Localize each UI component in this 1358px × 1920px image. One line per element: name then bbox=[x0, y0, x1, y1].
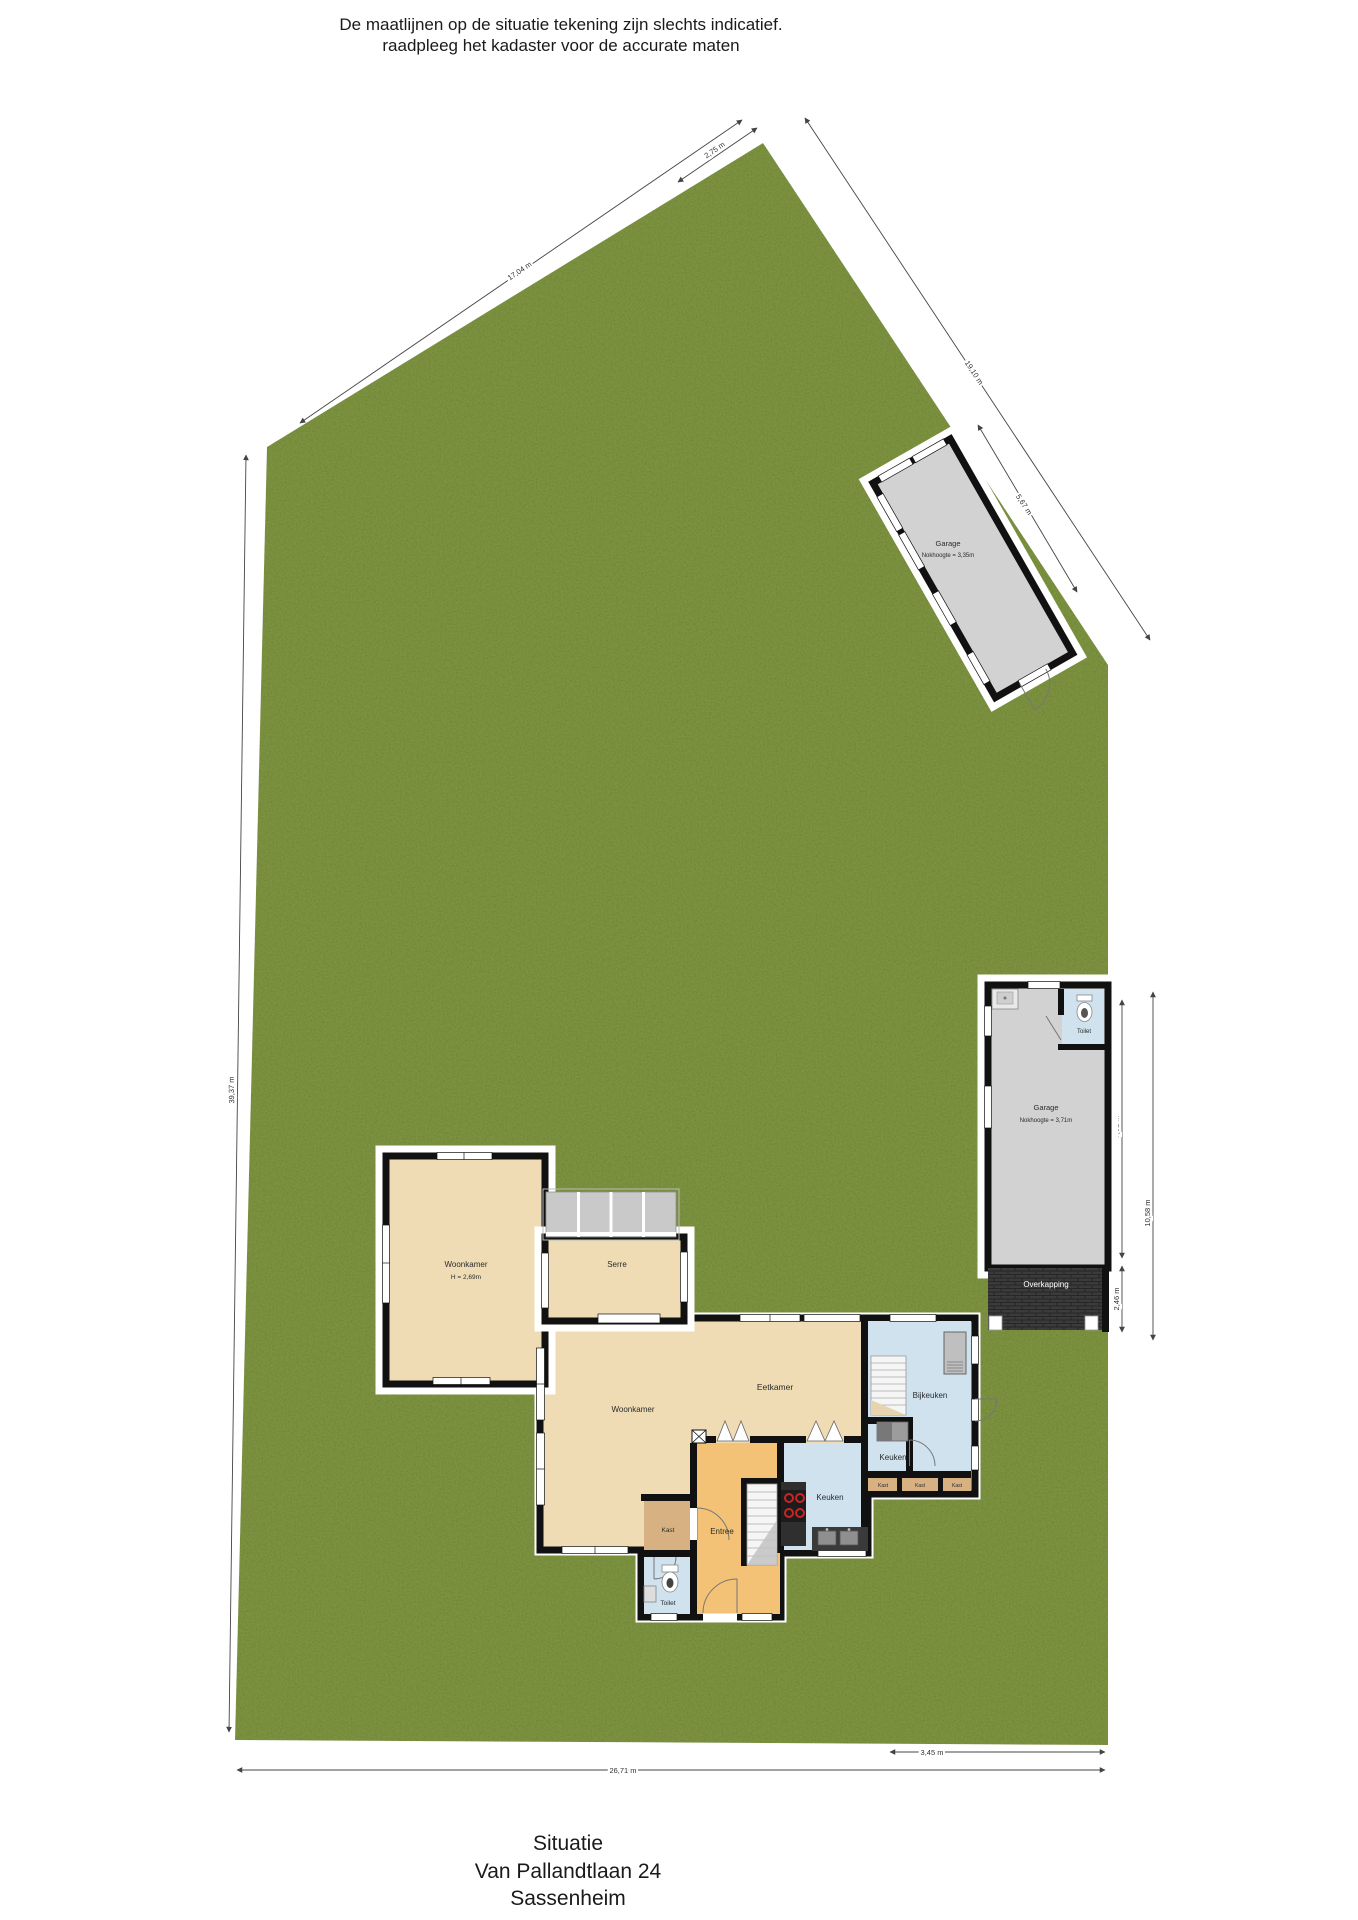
overkapping-label: Overkapping bbox=[1023, 1280, 1068, 1289]
label-woonkamer-links: Woonkamer bbox=[445, 1260, 488, 1269]
label-serre: Serre bbox=[607, 1260, 627, 1269]
dim-onder-rechts: 3,45 m bbox=[921, 1748, 944, 1757]
garage-east-toilet-label: Toilet bbox=[1077, 1029, 1091, 1035]
disclaimer: De maatlijnen op de situatie tekening zi… bbox=[339, 15, 782, 55]
kast-door-gap bbox=[690, 1508, 697, 1540]
label-keuken: Keuken bbox=[816, 1493, 843, 1502]
footer-city: Sassenheim bbox=[510, 1887, 626, 1910]
stairs-bijkeuken bbox=[871, 1356, 906, 1415]
dim-top-right-edge: 19,10 m bbox=[963, 359, 985, 387]
overkapping: Overkapping bbox=[988, 1268, 1109, 1332]
disclaimer-line2: raadpleeg het kadaster voor de accurate … bbox=[382, 36, 739, 55]
dim-top-left-edge: 17,04 m bbox=[506, 260, 533, 283]
label-entree: Entree bbox=[710, 1527, 734, 1536]
garage-east-label: Garage bbox=[1033, 1103, 1058, 1112]
label-toilet: Toilet bbox=[660, 1600, 675, 1607]
label-woonkamer-links-h: H = 2,69m bbox=[451, 1274, 481, 1281]
fridge-icon bbox=[944, 1332, 966, 1374]
serre-opening bbox=[598, 1314, 660, 1323]
keuken-klein-counter bbox=[877, 1422, 908, 1441]
label-woonkamer: Woonkamer bbox=[612, 1405, 655, 1414]
label-keuken-klein: Keuken bbox=[879, 1453, 906, 1462]
room-serre bbox=[545, 1237, 684, 1321]
toilet-icon-garage bbox=[1077, 995, 1092, 1022]
room-woonkamer-links bbox=[386, 1156, 545, 1384]
garage-north-label: Garage bbox=[935, 539, 960, 548]
stairs-entree bbox=[747, 1484, 777, 1565]
sink-icon-house bbox=[644, 1586, 656, 1602]
dim-overkapping-diepte: 2,46 m bbox=[1112, 1288, 1121, 1311]
disclaimer-line1: De maatlijnen op de situatie tekening zi… bbox=[339, 15, 782, 34]
label-eetkamer: Eetkamer bbox=[757, 1382, 794, 1392]
situatie-plattegrond: De maatlijnen op de situatie tekening zi… bbox=[0, 0, 1358, 1920]
label-kast-2: Kast bbox=[915, 1483, 926, 1489]
label-bijkeuken: Bijkeuken bbox=[913, 1391, 948, 1400]
label-kast-1: Kast bbox=[878, 1483, 889, 1489]
dim-links: 39,37 m bbox=[227, 1076, 236, 1103]
dim-onder: 26,71 m bbox=[609, 1766, 636, 1775]
overkapping-post-left bbox=[989, 1316, 1002, 1330]
flue-symbol bbox=[692, 1430, 706, 1443]
dim-garage-zijde: 5,67 m bbox=[1014, 493, 1034, 517]
garage-east-sub: Nokhoogte = 3,71m bbox=[1020, 1118, 1073, 1124]
overkapping-post-right bbox=[1085, 1316, 1098, 1330]
footer-address: Van Pallandtlaan 24 bbox=[475, 1860, 662, 1883]
footer-title: Situatie bbox=[533, 1832, 603, 1855]
room-kast bbox=[644, 1498, 690, 1550]
serre-skylight bbox=[543, 1189, 679, 1240]
footer: Situatie Van Pallandtlaan 24 Sassenheim bbox=[475, 1832, 662, 1910]
label-kast-3: Kast bbox=[952, 1483, 963, 1489]
situatie-page: De maatlijnen op de situatie tekening zi… bbox=[0, 0, 1358, 1920]
label-kast: Kast bbox=[661, 1527, 674, 1534]
garage-east: Toilet Garage Nokhoogte = 3,71m bbox=[983, 980, 1113, 1273]
dim-rechts-onder: 10,58 m bbox=[1143, 1199, 1152, 1226]
garage-north-sub: Nokhoogte = 3,35m bbox=[922, 553, 975, 559]
sink-icon-garage bbox=[992, 989, 1018, 1009]
